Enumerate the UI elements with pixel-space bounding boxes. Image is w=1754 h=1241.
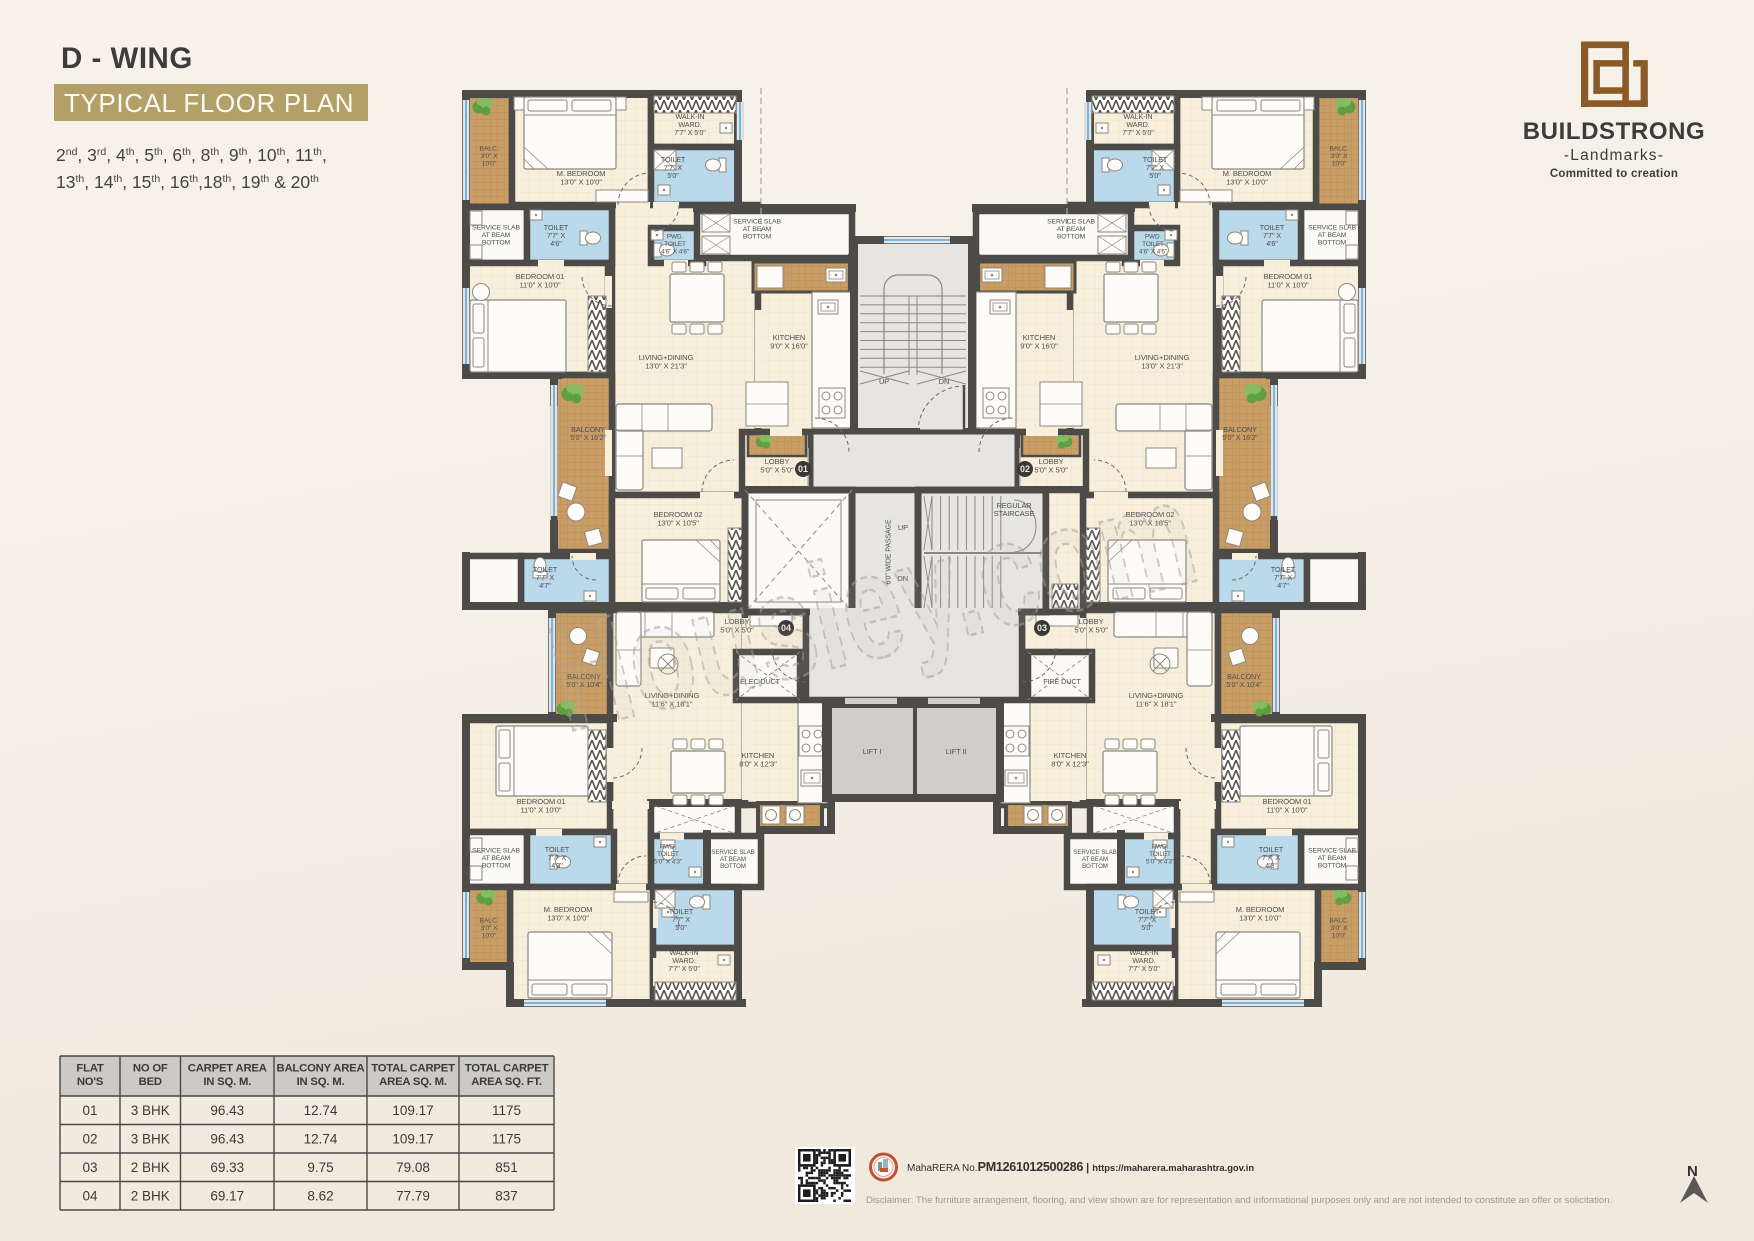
svg-text:FIRE DUCT: FIRE DUCT: [1043, 677, 1081, 686]
svg-text:96.43: 96.43: [210, 1103, 244, 1118]
svg-text:M. BEDROOM13'0" X 10'0": M. BEDROOM13'0" X 10'0": [544, 905, 593, 923]
svg-text:BALCONY5'0" X 10'4": BALCONY5'0" X 10'4": [1226, 672, 1262, 689]
svg-text:BALC.3'0" X10'0": BALC.3'0" X10'0": [479, 917, 498, 939]
svg-text:12.74: 12.74: [304, 1103, 338, 1118]
svg-text:109.17: 109.17: [392, 1131, 433, 1146]
svg-text:KITCHEN8'0" X 12'3": KITCHEN8'0" X 12'3": [1051, 751, 1089, 769]
svg-text:BALCONY5'0" X 16'2": BALCONY5'0" X 16'2": [570, 425, 606, 442]
svg-text:9.75: 9.75: [307, 1160, 333, 1175]
svg-text:Disclaimer: The furniture arra: Disclaimer: The furniture arrangement, f…: [866, 1195, 1612, 1206]
svg-text:MahaRERA No.PM1261012500286 |: MahaRERA No.PM1261012500286 | https://ma…: [907, 1160, 1254, 1174]
svg-text:LOBBY5'0" X 5'0": LOBBY5'0" X 5'0": [760, 457, 794, 475]
svg-text:M. BEDROOM13'0" X 10'0": M. BEDROOM13'0" X 10'0": [1223, 169, 1272, 187]
svg-text:TOTAL CARPETAREA SQ. M.: TOTAL CARPETAREA SQ. M.: [371, 1062, 455, 1088]
svg-text:D - WING: D - WING: [61, 42, 193, 75]
svg-text:BUILDSTRONG: BUILDSTRONG: [1523, 118, 1706, 145]
svg-text:WALK-INWARD.7'7" X 5'0": WALK-INWARD.7'7" X 5'0": [674, 112, 706, 137]
svg-text:FLATNO'S: FLATNO'S: [76, 1062, 104, 1088]
svg-text:TOTAL CARPETAREA SQ. FT.: TOTAL CARPETAREA SQ. FT.: [465, 1062, 549, 1088]
svg-text:69.17: 69.17: [210, 1188, 244, 1203]
svg-text:LOBBY5'0" X 5'0": LOBBY5'0" X 5'0": [1034, 457, 1068, 475]
svg-text:BALC.3'0" X10'0": BALC.3'0" X10'0": [1329, 145, 1348, 167]
svg-text:837: 837: [495, 1188, 518, 1203]
svg-text:1175: 1175: [492, 1103, 521, 1118]
svg-text:69.33: 69.33: [210, 1160, 244, 1175]
svg-text:2nd, 3rd, 4th, 5th, 6th, 8th,: 2nd, 3rd, 4th, 5th, 6th, 8th, 9th, 10th,…: [56, 145, 327, 165]
svg-text:KITCHEN9'0" X 16'0": KITCHEN9'0" X 16'0": [1020, 333, 1058, 351]
svg-text:851: 851: [495, 1160, 518, 1175]
svg-text:109.17: 109.17: [392, 1103, 433, 1118]
svg-text:02: 02: [82, 1131, 97, 1146]
svg-text:TYPICAL FLOOR PLAN: TYPICAL FLOOR PLAN: [64, 88, 354, 118]
svg-text:WALK-INWARD.7'7" X 5'0": WALK-INWARD.7'7" X 5'0": [668, 948, 700, 973]
svg-text:2 BHK: 2 BHK: [131, 1160, 170, 1175]
svg-text:LIFT I: LIFT I: [863, 747, 882, 756]
svg-text:03: 03: [82, 1160, 97, 1175]
svg-text:M. BEDROOM13'0" X 10'0": M. BEDROOM13'0" X 10'0": [557, 169, 606, 187]
svg-text:LIVING+DINING13'0" X 21'3": LIVING+DINING13'0" X 21'3": [1135, 353, 1190, 371]
svg-text:WALK-INWARD.7'7" X 5'0": WALK-INWARD.7'7" X 5'0": [1122, 112, 1154, 137]
svg-text:KITCHEN8'0" X 12'3": KITCHEN8'0" X 12'3": [739, 751, 777, 769]
svg-text:M. BEDROOM13'0" X 10'0": M. BEDROOM13'0" X 10'0": [1236, 905, 1285, 923]
svg-text:N: N: [1687, 1163, 1698, 1180]
svg-text:1175: 1175: [492, 1131, 521, 1146]
svg-text:13th, 14th, 15th, 16th,18th, 1: 13th, 14th, 15th, 16th,18th, 19th & 20th: [56, 172, 319, 192]
svg-text:-Landmarks-: -Landmarks-: [1564, 147, 1664, 164]
svg-text:BALC.3'0" X10'0": BALC.3'0" X10'0": [1329, 917, 1348, 939]
svg-text:96.43: 96.43: [210, 1131, 244, 1146]
svg-text:8.62: 8.62: [307, 1188, 333, 1203]
svg-text:KITCHEN9'0" X 16'0": KITCHEN9'0" X 16'0": [770, 333, 808, 351]
svg-text:DN: DN: [939, 377, 949, 386]
svg-text:04: 04: [82, 1188, 98, 1203]
svg-text:BEDROOM 0111'0" X 10'0": BEDROOM 0111'0" X 10'0": [516, 272, 565, 290]
svg-text:LIFT II: LIFT II: [946, 747, 967, 756]
svg-text:BEDROOM 0111'0" X 10'0": BEDROOM 0111'0" X 10'0": [1263, 797, 1312, 815]
svg-text:LIVING+DINING13'0" X 21'3": LIVING+DINING13'0" X 21'3": [639, 353, 694, 371]
svg-text:BEDROOM 0213'0" X 10'5": BEDROOM 0213'0" X 10'5": [654, 510, 703, 528]
svg-text:BEDROOM 0111'0" X 10'0": BEDROOM 0111'0" X 10'0": [517, 797, 566, 815]
svg-text:Committed to creation: Committed to creation: [1550, 168, 1678, 180]
svg-text:01: 01: [798, 464, 808, 474]
svg-text:12.74: 12.74: [304, 1131, 338, 1146]
svg-text:01: 01: [82, 1103, 97, 1118]
svg-text:2 BHK: 2 BHK: [131, 1188, 170, 1203]
svg-text:02: 02: [1020, 464, 1030, 474]
svg-text:BALC.3'0" X10'0": BALC.3'0" X10'0": [479, 145, 498, 167]
svg-text:BALCONY5'0" X 16'2": BALCONY5'0" X 16'2": [1222, 425, 1258, 442]
svg-text:LIVING+DINING11'6" X 18'1": LIVING+DINING11'6" X 18'1": [1129, 691, 1184, 709]
svg-text:77.79: 77.79: [396, 1188, 430, 1203]
svg-text:BEDROOM 0111'0" X 10'0": BEDROOM 0111'0" X 10'0": [1264, 272, 1313, 290]
svg-text:3 BHK: 3 BHK: [131, 1103, 170, 1118]
svg-text:79.08: 79.08: [396, 1160, 430, 1175]
svg-text:UP: UP: [879, 377, 889, 386]
svg-text:WALK-INWARD.7'7" X 5'0": WALK-INWARD.7'7" X 5'0": [1128, 948, 1160, 973]
svg-text:3 BHK: 3 BHK: [131, 1131, 170, 1146]
